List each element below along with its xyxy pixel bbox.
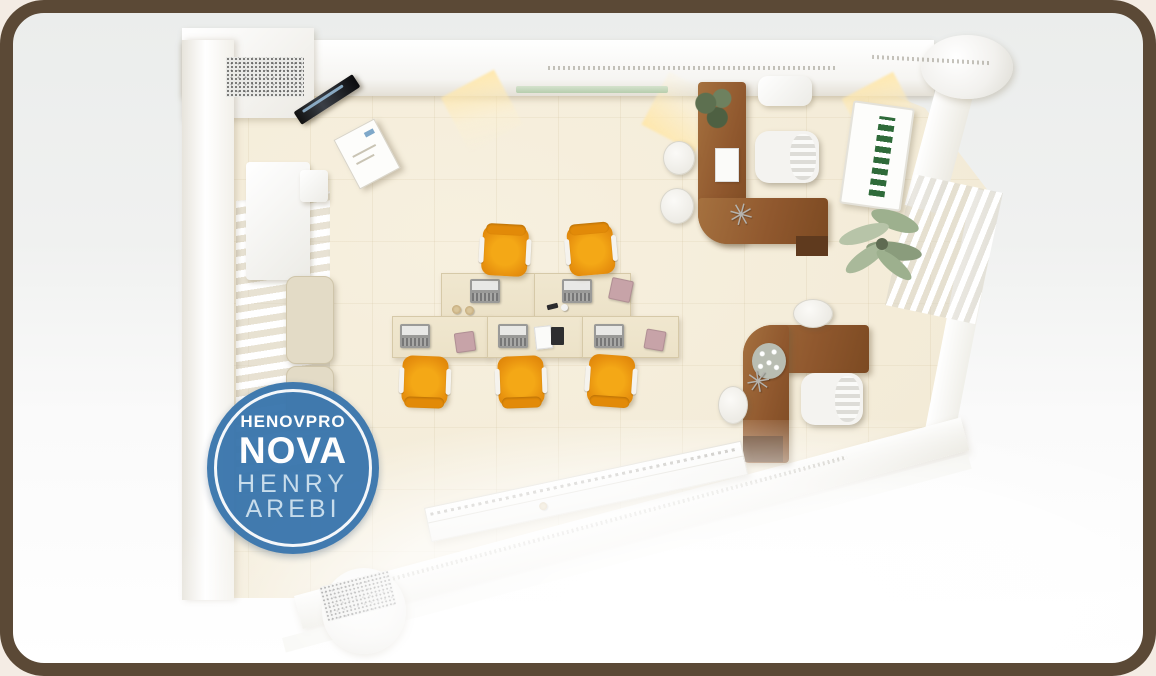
guest-chair — [660, 188, 694, 224]
coffee-cup — [465, 306, 474, 315]
round-column-top-right — [921, 35, 1013, 99]
logo-line3: HENRY — [237, 472, 349, 498]
green-books — [868, 116, 895, 197]
guest-chair — [663, 141, 695, 175]
laptop — [498, 324, 528, 348]
granite-wall-accent-top — [226, 57, 304, 97]
logo-text: HENOVPRO NOVA HENRY AREBI — [237, 413, 349, 522]
orange-task-chair — [481, 225, 530, 277]
desk-side-panel — [743, 436, 783, 462]
watermark-logo-badge: HENOVPRO NOVA HENRY AREBI — [207, 382, 379, 554]
orange-task-chair — [401, 355, 449, 407]
credenza-cabinet — [758, 76, 812, 106]
pink-notebook — [454, 331, 477, 354]
pink-notebook — [608, 277, 634, 303]
wall-annotation-marks — [548, 66, 838, 70]
tablet-device — [551, 327, 564, 345]
laptop — [594, 324, 624, 348]
pink-notebook — [643, 328, 666, 351]
guest-chair — [718, 386, 748, 424]
whiteboard-marker — [364, 128, 375, 137]
desk-plant — [692, 84, 738, 132]
orange-task-chair — [566, 223, 616, 277]
white-laptop — [715, 148, 739, 182]
executive-chair — [755, 131, 819, 183]
computer-mouse — [561, 304, 568, 311]
laptop — [562, 279, 592, 303]
desk-side-panel — [796, 236, 828, 256]
orange-task-chair — [497, 355, 545, 407]
logo-line2: NOVA — [237, 432, 349, 470]
laptop — [400, 324, 430, 348]
logo-line4: AREBI — [237, 497, 349, 523]
starfish-decor: ✳ — [744, 366, 774, 400]
glass-light-fixture — [516, 86, 668, 93]
orange-task-chair — [586, 353, 635, 406]
guest-chair — [793, 299, 833, 328]
laptop — [470, 279, 500, 303]
framed-floor-plan-render: ✳ ✳ HENOVPRO NOVA HENRY ARE — [0, 0, 1156, 676]
sofa-seat — [286, 276, 334, 364]
whiteboard-line — [356, 154, 375, 165]
palm-plant — [836, 208, 928, 282]
executive-chair — [801, 373, 863, 425]
storage-cabinet-small — [300, 170, 328, 202]
logo-line1: HENOVPRO — [237, 413, 349, 430]
coffee-cup — [452, 305, 461, 314]
counter-ornament — [538, 501, 547, 510]
